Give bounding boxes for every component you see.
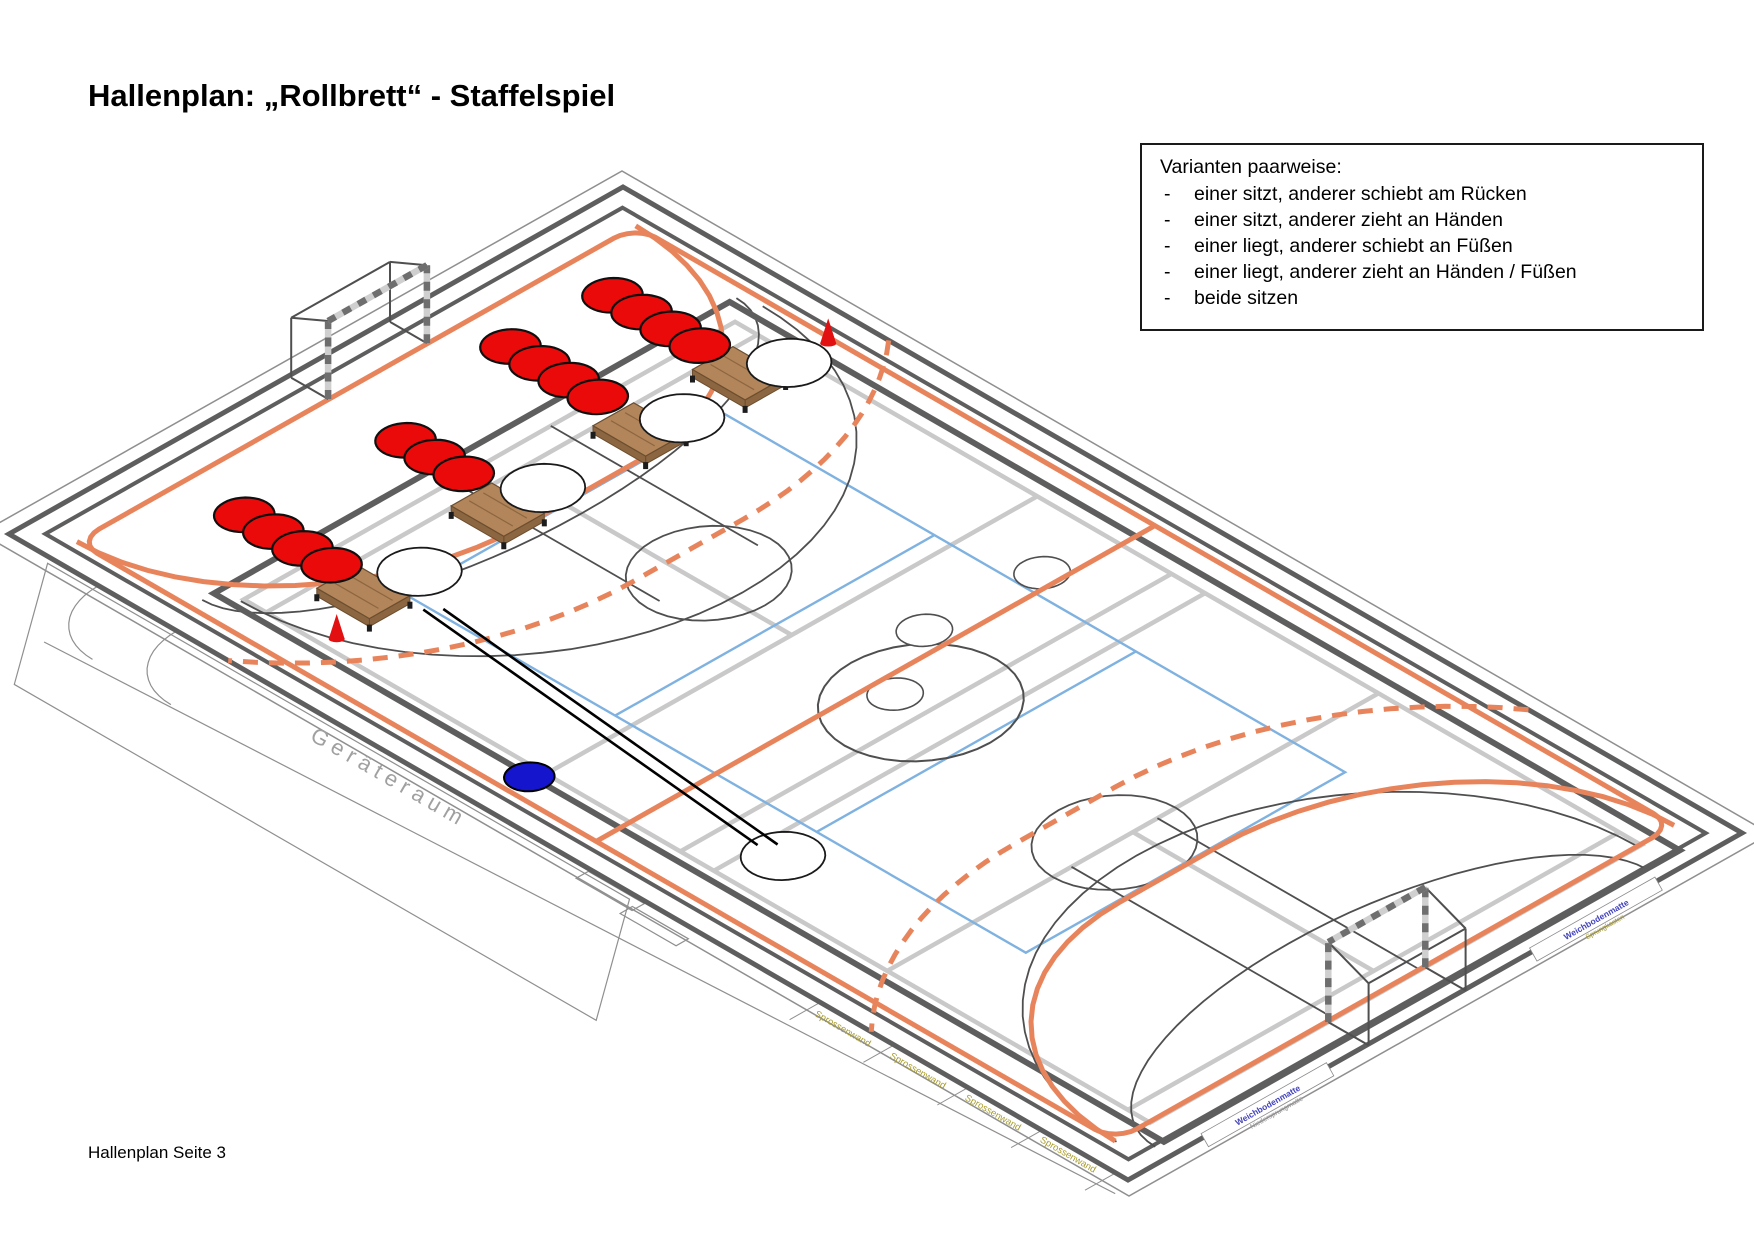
band-divider	[1011, 1130, 1042, 1147]
variant-item: -einer sitzt, anderer zieht an Händen	[1160, 207, 1688, 233]
mat-outline	[576, 871, 644, 910]
variants-title: Varianten paarweise:	[1160, 154, 1688, 180]
variant-item: -einer liegt, anderer schiebt an Füßen	[1160, 233, 1688, 259]
player-dot	[568, 380, 629, 415]
three-point-arc	[1131, 855, 1646, 1147]
page-title: Hallenplan: „Rollbrett“ - Staffelspiel	[88, 78, 615, 114]
small-court-circle	[1014, 557, 1070, 589]
goal-frame-line	[291, 262, 390, 318]
cone-icon	[329, 614, 345, 639]
bench-leg	[314, 594, 319, 601]
roller-board-circle	[747, 339, 832, 387]
goal-frame-line	[291, 378, 328, 399]
variants-box: Varianten paarweise: -einer sitzt, ander…	[1140, 143, 1704, 331]
bench-leg	[643, 462, 648, 469]
bench-leg	[407, 602, 412, 609]
bench-leg	[367, 625, 372, 632]
variant-item: -einer liegt, anderer zieht an Händen / …	[1160, 259, 1688, 285]
roller-board-circle	[501, 464, 586, 512]
player-dot	[434, 457, 495, 492]
goal	[291, 262, 427, 399]
roller-board-circle	[741, 832, 826, 880]
equipment-room-outline	[14, 563, 629, 1020]
door-swing-arc	[69, 586, 99, 660]
page-footer: Hallenplan Seite 3	[88, 1143, 226, 1163]
goal-frame-line	[1425, 887, 1465, 928]
inner-field-rect	[214, 302, 1680, 1142]
building-band-line	[44, 642, 1115, 1194]
bench-leg	[542, 519, 547, 526]
roller-board-circle	[640, 394, 725, 442]
door-swing-arc	[147, 631, 177, 705]
player-dot	[301, 548, 362, 583]
small-court-circle	[896, 614, 953, 646]
ball-marker	[504, 762, 555, 791]
roller-board-circle	[377, 548, 462, 596]
equipment-room-label: Geräteraum	[307, 722, 473, 832]
goal-frame-line	[390, 322, 427, 343]
hallenplan-page: GeräteraumSprossenwandSprossenwandSpross…	[0, 0, 1754, 1240]
player-dot	[670, 328, 731, 363]
mat-outline	[620, 907, 688, 946]
basketball-center-circle	[818, 644, 1024, 762]
bench-leg	[690, 376, 695, 383]
variant-item: -beide sitzen	[1160, 285, 1688, 311]
volleyball-attack-line	[817, 651, 1136, 832]
bench-leg	[501, 542, 506, 549]
bench-leg	[743, 406, 748, 413]
bench-leg	[591, 432, 596, 439]
variant-item: -einer sitzt, anderer schiebt am Rücken	[1160, 181, 1688, 207]
bench-leg	[449, 512, 454, 519]
goal-frame-line	[291, 318, 328, 321]
band-divider	[1085, 1173, 1116, 1190]
goal	[1328, 887, 1465, 1045]
